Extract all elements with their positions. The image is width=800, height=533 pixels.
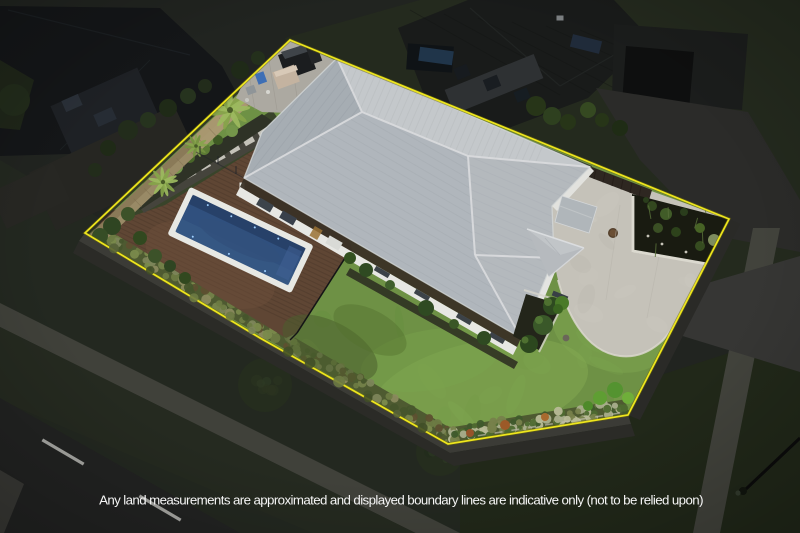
svg-text:Any land measurements are appr: Any land measurements are approximated a… <box>99 493 703 508</box>
